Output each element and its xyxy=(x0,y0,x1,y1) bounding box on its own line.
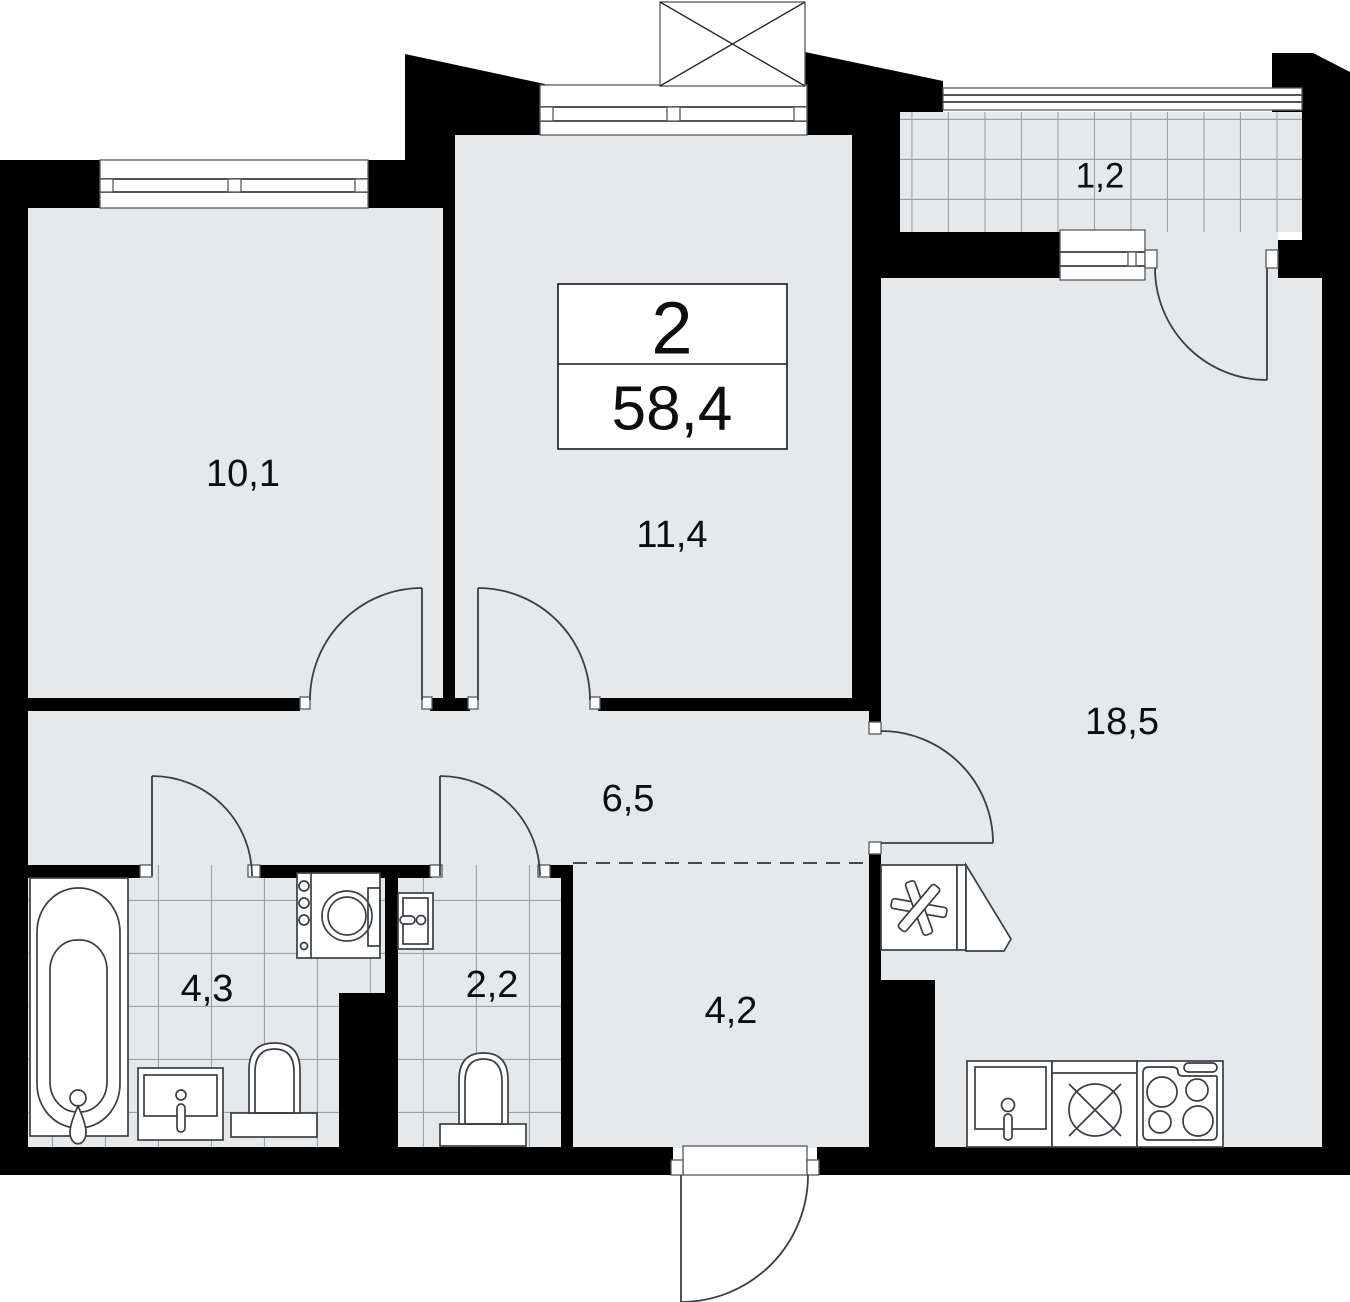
area-label-room-11-4: 11,4 xyxy=(636,514,707,556)
washing-machine xyxy=(297,873,380,958)
wall-sink xyxy=(398,893,433,949)
wall-bath-a xyxy=(28,865,140,878)
window-room-10-1 xyxy=(100,160,368,208)
title-block: 2 58,4 xyxy=(558,284,787,449)
kitchen-sink xyxy=(967,1061,1052,1147)
total-area: 58,4 xyxy=(612,375,733,444)
area-label-bathroom: 4,3 xyxy=(181,968,234,1010)
area-label-kitchen-living: 18,5 xyxy=(1085,701,1159,743)
floor-hallway xyxy=(28,698,881,877)
wall-toilet-right xyxy=(561,865,573,1148)
wall-top-left xyxy=(28,160,100,208)
window-room-11-4 xyxy=(540,85,807,135)
floor-plan: 2 58,4 10,1 11,4 18,5 6,5 4,3 2,2 4,2 1,… xyxy=(0,0,1350,1302)
area-label-room-10-1: 10,1 xyxy=(206,453,280,495)
wall-left xyxy=(0,160,28,1175)
area-label-entry: 4,2 xyxy=(705,990,758,1032)
entrance-opening xyxy=(671,1146,819,1175)
wall-under-balcony xyxy=(881,232,1062,278)
wall-bottom-right xyxy=(817,1147,1350,1175)
wall-hall-a xyxy=(28,698,300,711)
wall-bottom-left xyxy=(0,1147,673,1175)
area-label-balcony: 1,2 xyxy=(1076,157,1125,196)
wall-kitchen-duct xyxy=(881,980,935,1148)
area-label-toilet: 2,2 xyxy=(466,964,519,1006)
air-conditioner-box xyxy=(660,2,805,86)
balcony-railing xyxy=(943,88,1302,110)
wall-between-rooms xyxy=(443,135,455,710)
wall-bath-duct xyxy=(339,993,398,1148)
wall-entry-right xyxy=(869,853,881,1148)
area-label-hallway: 6,5 xyxy=(602,778,655,820)
wall-hall-c xyxy=(598,698,869,711)
rooms-count: 2 xyxy=(651,287,692,370)
hob xyxy=(1052,1061,1137,1147)
bathroom-sink xyxy=(138,1068,223,1140)
stove xyxy=(1137,1061,1223,1147)
bathtub xyxy=(30,878,128,1144)
door-entrance xyxy=(681,1175,808,1302)
floor-balcony-door-threshold xyxy=(1145,232,1278,278)
wall-hall-b xyxy=(430,698,470,711)
floor-plan-canvas: 2 58,4 10,1 11,4 18,5 6,5 4,3 2,2 4,2 1,… xyxy=(0,0,1350,1302)
